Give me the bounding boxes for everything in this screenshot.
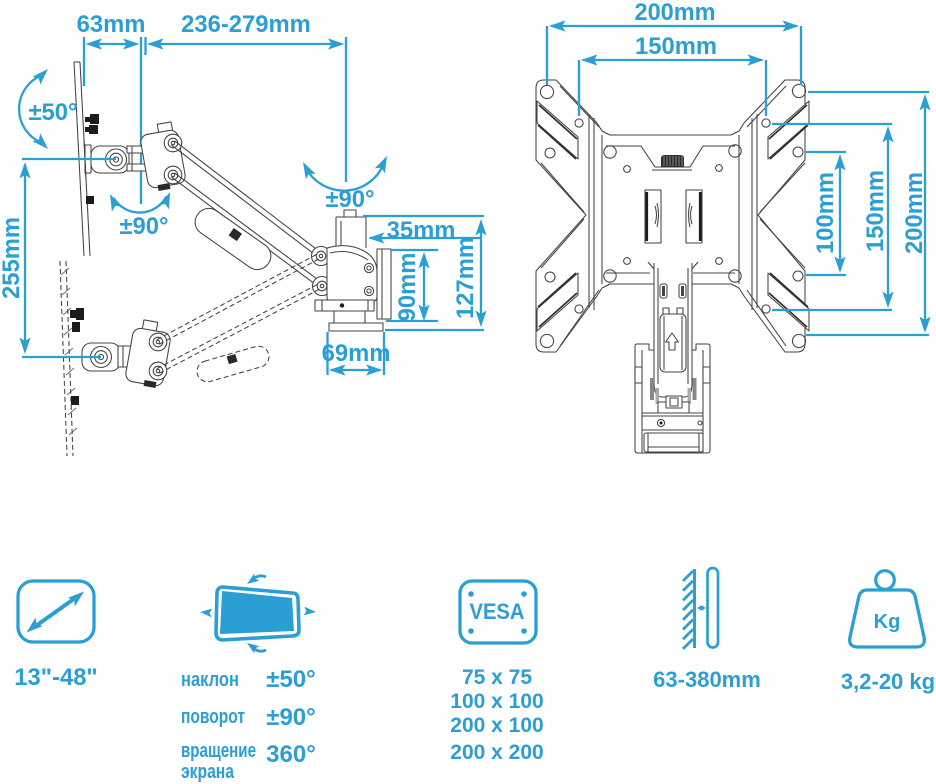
svg-text:150mm: 150mm xyxy=(635,33,717,60)
svg-text:63mm: 63mm xyxy=(77,11,146,38)
svg-text:75 x 75: 75 x 75 xyxy=(462,666,532,689)
svg-text:150mm: 150mm xyxy=(862,170,889,252)
svg-text:наклон: наклон xyxy=(181,669,239,691)
svg-text:VESA: VESA xyxy=(470,599,525,624)
svg-text:127mm: 127mm xyxy=(452,237,479,319)
svg-text:200 x 200: 200 x 200 xyxy=(450,741,543,764)
svg-text:100 x 100: 100 x 100 xyxy=(450,690,543,713)
svg-text:360°: 360° xyxy=(266,741,316,768)
svg-text:вращение: вращение xyxy=(181,740,256,762)
svg-text:236-279mm: 236-279mm xyxy=(181,11,311,38)
svg-text:200 x 100: 200 x 100 xyxy=(450,714,543,737)
svg-text:±90°: ±90° xyxy=(119,213,168,240)
svg-text:поворот: поворот xyxy=(181,706,245,728)
svg-text:13"-48": 13"-48" xyxy=(14,664,97,691)
svg-text:35mm: 35mm xyxy=(387,217,456,244)
svg-text:±50°: ±50° xyxy=(28,99,77,126)
svg-text:100mm: 100mm xyxy=(812,172,839,254)
svg-text:экрана: экрана xyxy=(181,761,235,783)
svg-text:90mm: 90mm xyxy=(394,253,421,322)
svg-text:±90°: ±90° xyxy=(325,186,374,213)
svg-text:69mm: 69mm xyxy=(322,340,391,367)
svg-text:±90°: ±90° xyxy=(266,704,315,731)
svg-text:63-380mm: 63-380mm xyxy=(653,667,761,692)
svg-text:Kg: Kg xyxy=(874,611,901,633)
svg-text:255mm: 255mm xyxy=(0,217,25,299)
svg-text:±50°: ±50° xyxy=(266,666,315,693)
svg-text:3,2-20 kg: 3,2-20 kg xyxy=(841,669,935,694)
svg-text:200mm: 200mm xyxy=(635,0,716,26)
